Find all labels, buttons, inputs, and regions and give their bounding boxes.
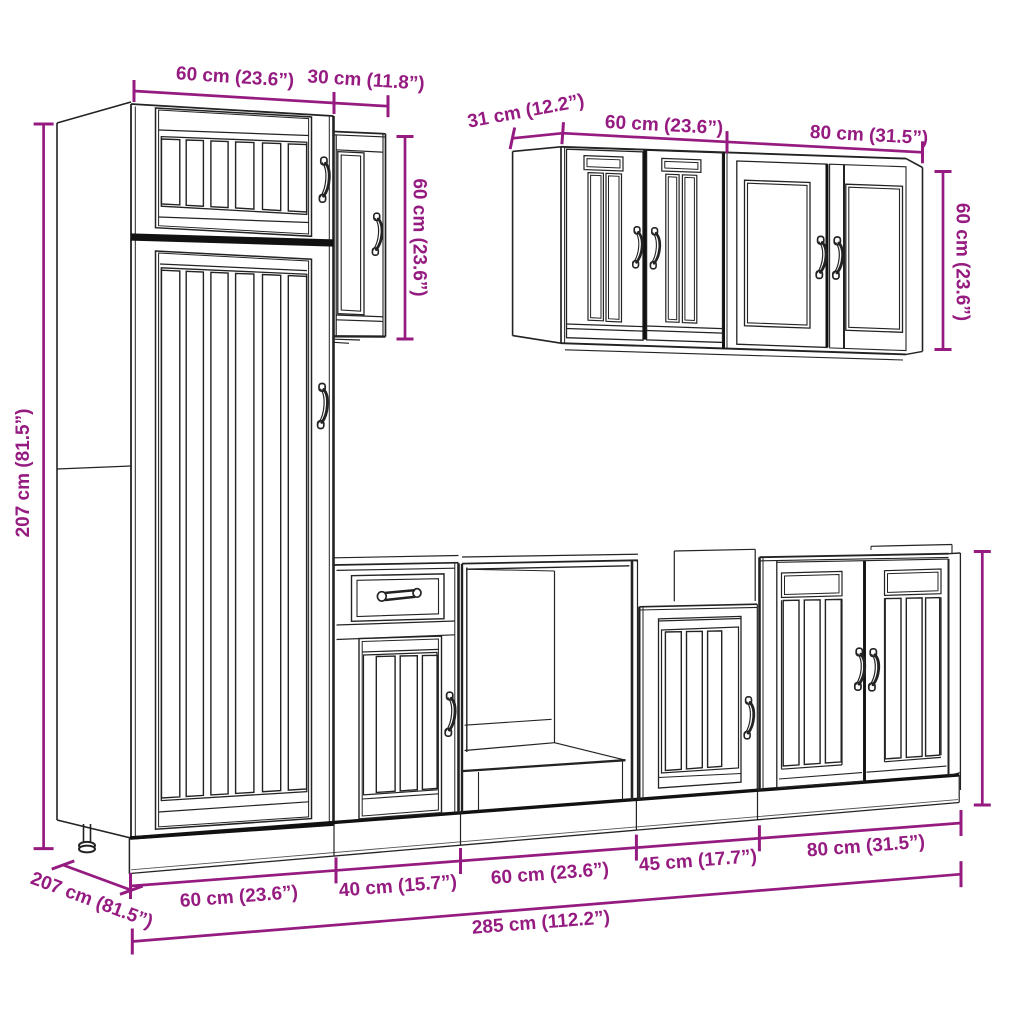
- svg-text:207 cm (81.5”): 207 cm (81.5”): [13, 409, 34, 538]
- svg-text:60 cm (23.6”): 60 cm (23.6”): [951, 203, 972, 321]
- svg-text:60 cm (23.6”): 60 cm (23.6”): [408, 178, 429, 296]
